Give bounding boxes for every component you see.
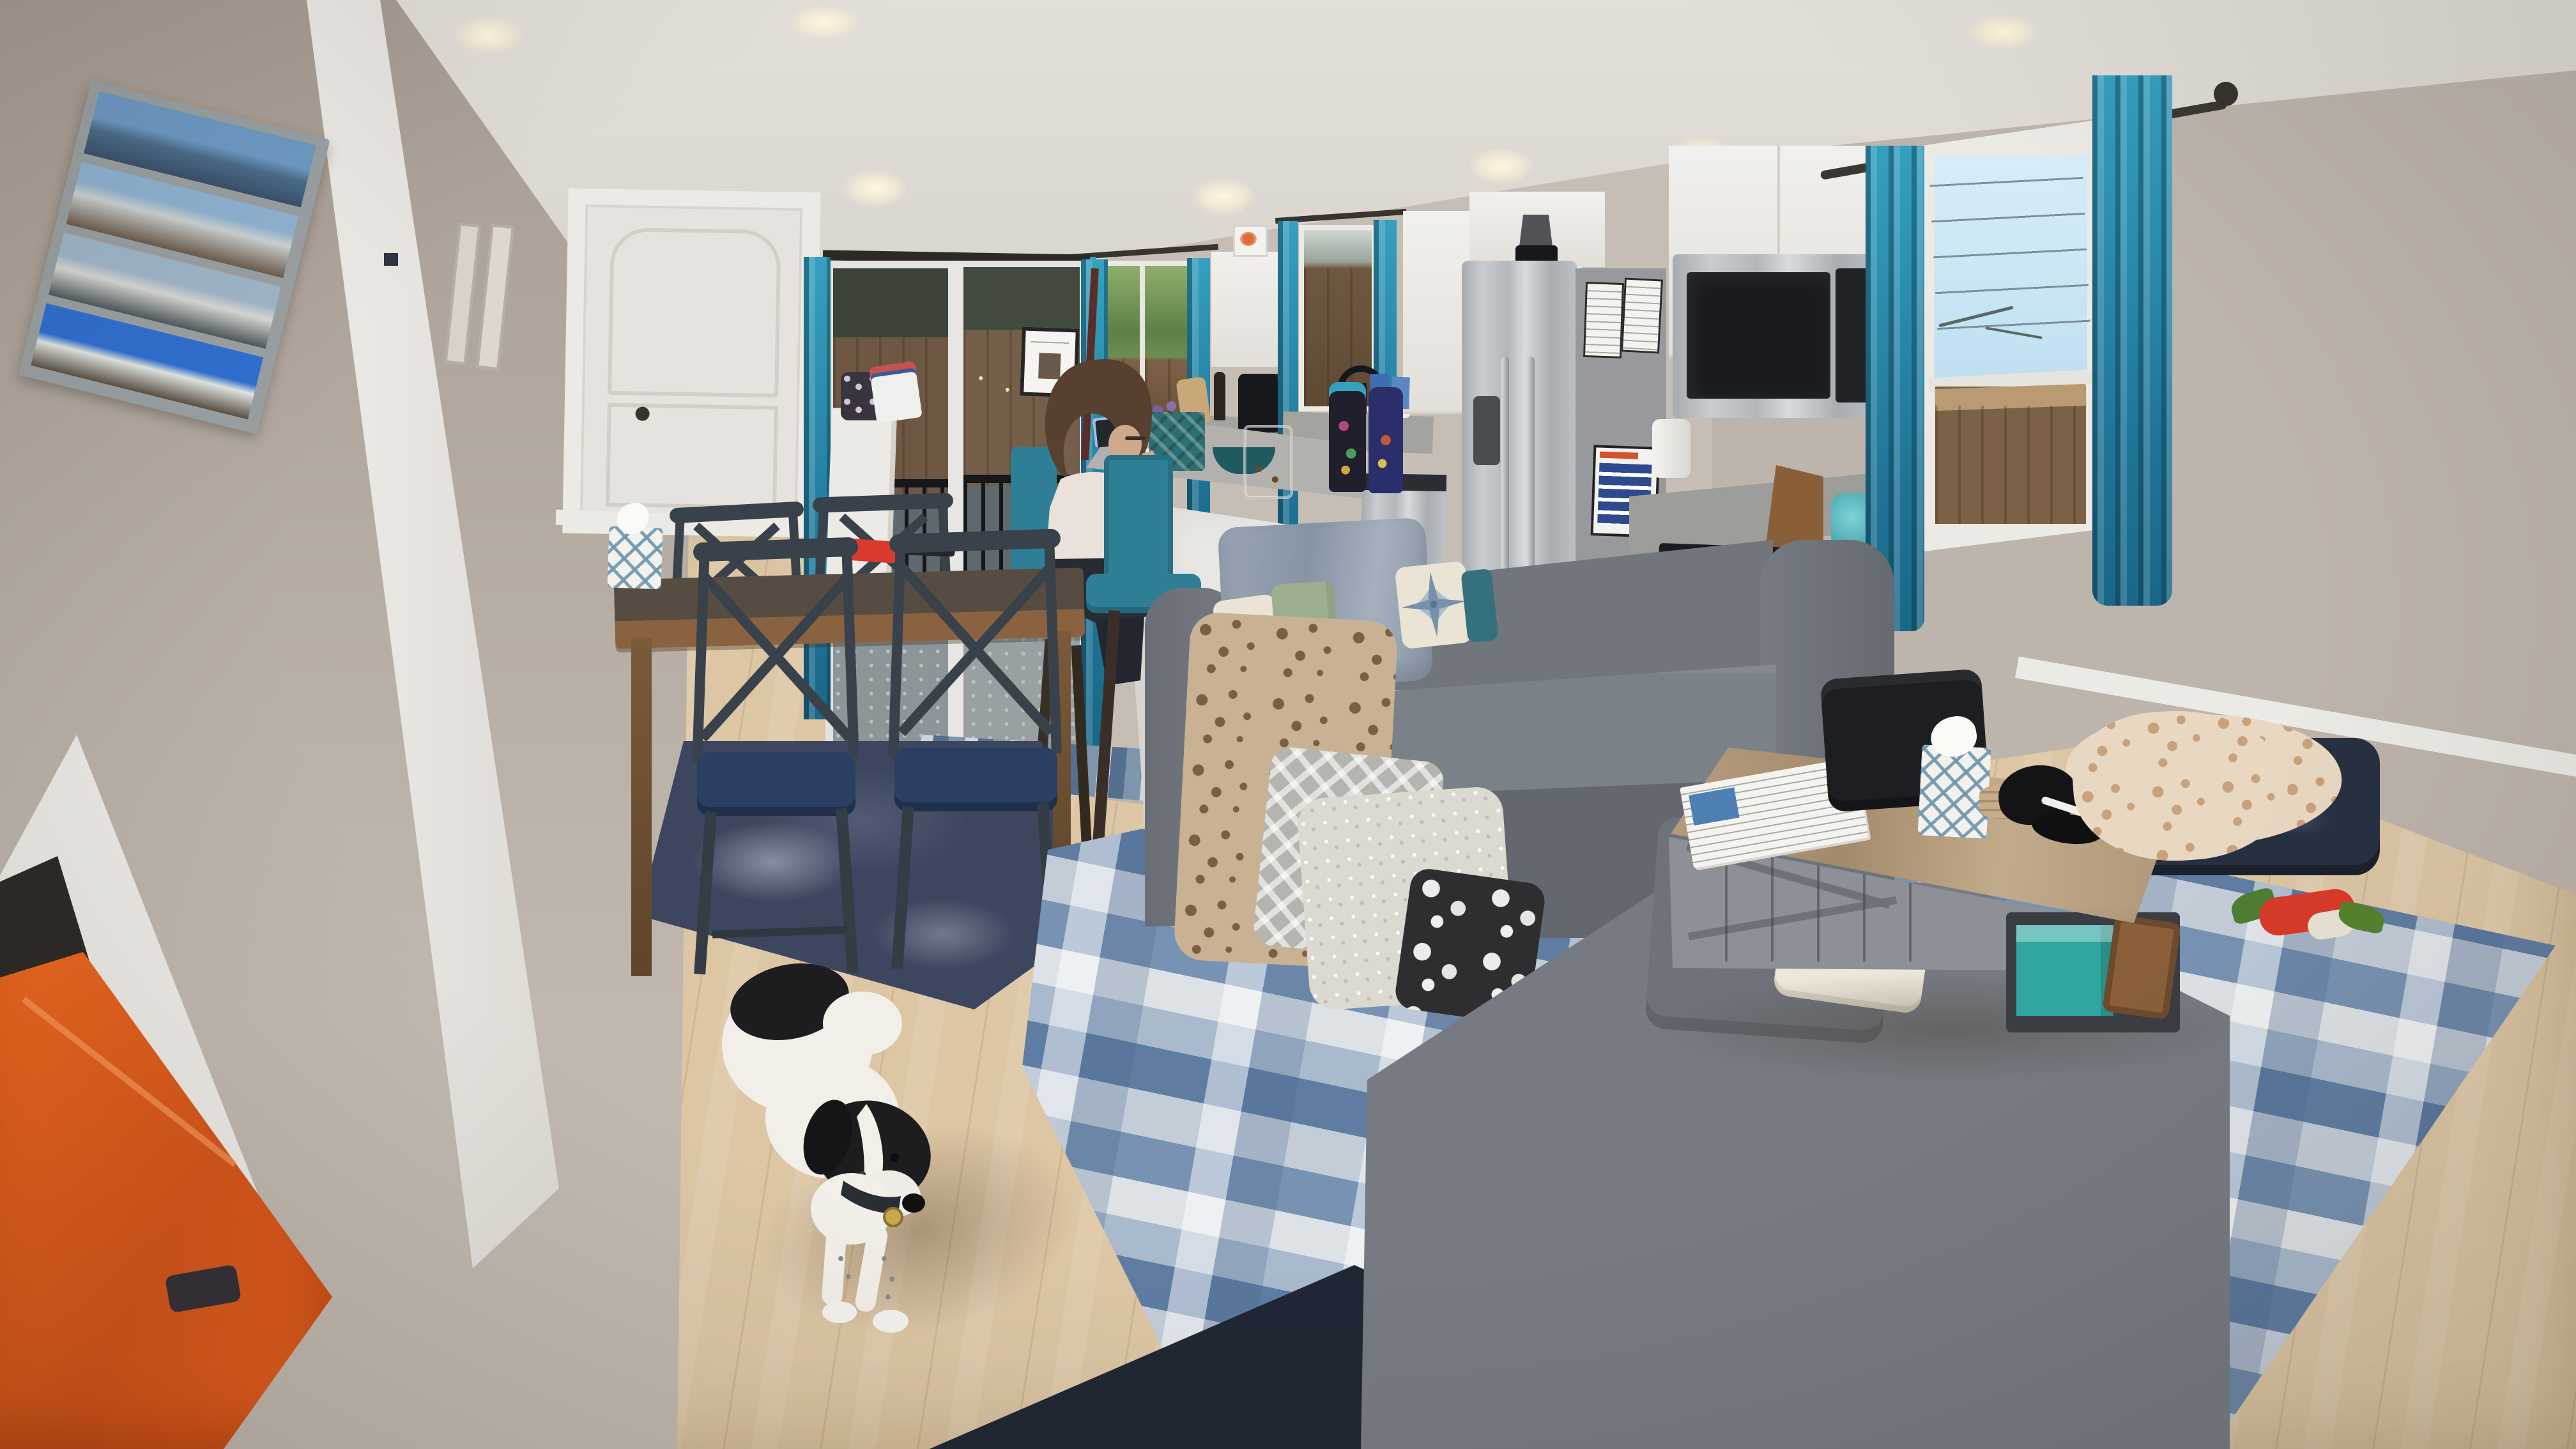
living-room-photo: Wide-angle evening photo of an open-conc… bbox=[0, 0, 2576, 1449]
chair-cushion bbox=[894, 747, 1057, 811]
window-glass-fence bbox=[1935, 387, 2086, 524]
upper-cabinet bbox=[1211, 252, 1280, 367]
fridge-handle-icon bbox=[1501, 356, 1509, 574]
door-panel bbox=[606, 403, 778, 510]
table-leg bbox=[631, 638, 652, 976]
fence-boards bbox=[1935, 406, 2086, 524]
snack-jar bbox=[1243, 425, 1293, 499]
window-glass-sky bbox=[1934, 155, 2087, 378]
info-header bbox=[1600, 452, 1638, 459]
dining-chair bbox=[693, 540, 866, 981]
chair-top-rail bbox=[693, 537, 859, 562]
chair-top-rail bbox=[889, 528, 1061, 553]
recessed-light-icon bbox=[776, 0, 872, 45]
chair-top-rail bbox=[813, 493, 954, 513]
game-box bbox=[2016, 925, 2113, 1016]
chair-cushion bbox=[697, 752, 855, 816]
recessed-light-icon bbox=[1457, 142, 1546, 190]
dog bbox=[701, 926, 944, 1348]
dusk-trees bbox=[833, 268, 948, 339]
fridge-handle-icon bbox=[1527, 356, 1535, 574]
paper-towel-roll bbox=[1652, 419, 1690, 478]
sign-text-lines bbox=[1031, 335, 1069, 349]
fridge-paper bbox=[1621, 278, 1663, 354]
bar-stool-back bbox=[1104, 455, 1173, 583]
water-bottle bbox=[1329, 382, 1366, 492]
fridge-paper bbox=[1583, 282, 1624, 358]
recessed-light-icon bbox=[831, 163, 920, 214]
crab-art bbox=[1240, 232, 1257, 246]
rod-finial-icon bbox=[2214, 82, 2238, 106]
recessed-light-icon bbox=[1179, 171, 1268, 222]
water-dispenser bbox=[1473, 396, 1500, 465]
chair-top-rail bbox=[670, 502, 804, 524]
binder-cover-image bbox=[1689, 787, 1739, 825]
white-door bbox=[580, 204, 802, 521]
microwave-window bbox=[1687, 272, 1830, 399]
microwave bbox=[1673, 254, 1885, 418]
wood-tray bbox=[2102, 915, 2181, 1020]
blender-jar bbox=[1519, 215, 1552, 247]
pillow-compass bbox=[1391, 553, 1476, 655]
recessed-light-icon bbox=[441, 10, 537, 61]
dusk-trees bbox=[963, 267, 1080, 331]
crab-art-frame bbox=[1233, 225, 1268, 257]
tissue-box bbox=[607, 526, 663, 590]
dog-toy bbox=[2231, 887, 2381, 954]
power-lines-icon bbox=[1929, 177, 2091, 351]
water-bottle bbox=[1368, 387, 1403, 493]
white-bag bbox=[869, 361, 923, 423]
coffee-table-shelf bbox=[2006, 912, 2180, 1032]
recessed-light-icon bbox=[1955, 8, 2051, 56]
right-window bbox=[1913, 118, 2108, 553]
wine-bottle bbox=[1214, 372, 1225, 420]
wall-switch bbox=[384, 253, 398, 266]
curtain bbox=[2092, 75, 2172, 606]
door-panel bbox=[608, 227, 781, 398]
